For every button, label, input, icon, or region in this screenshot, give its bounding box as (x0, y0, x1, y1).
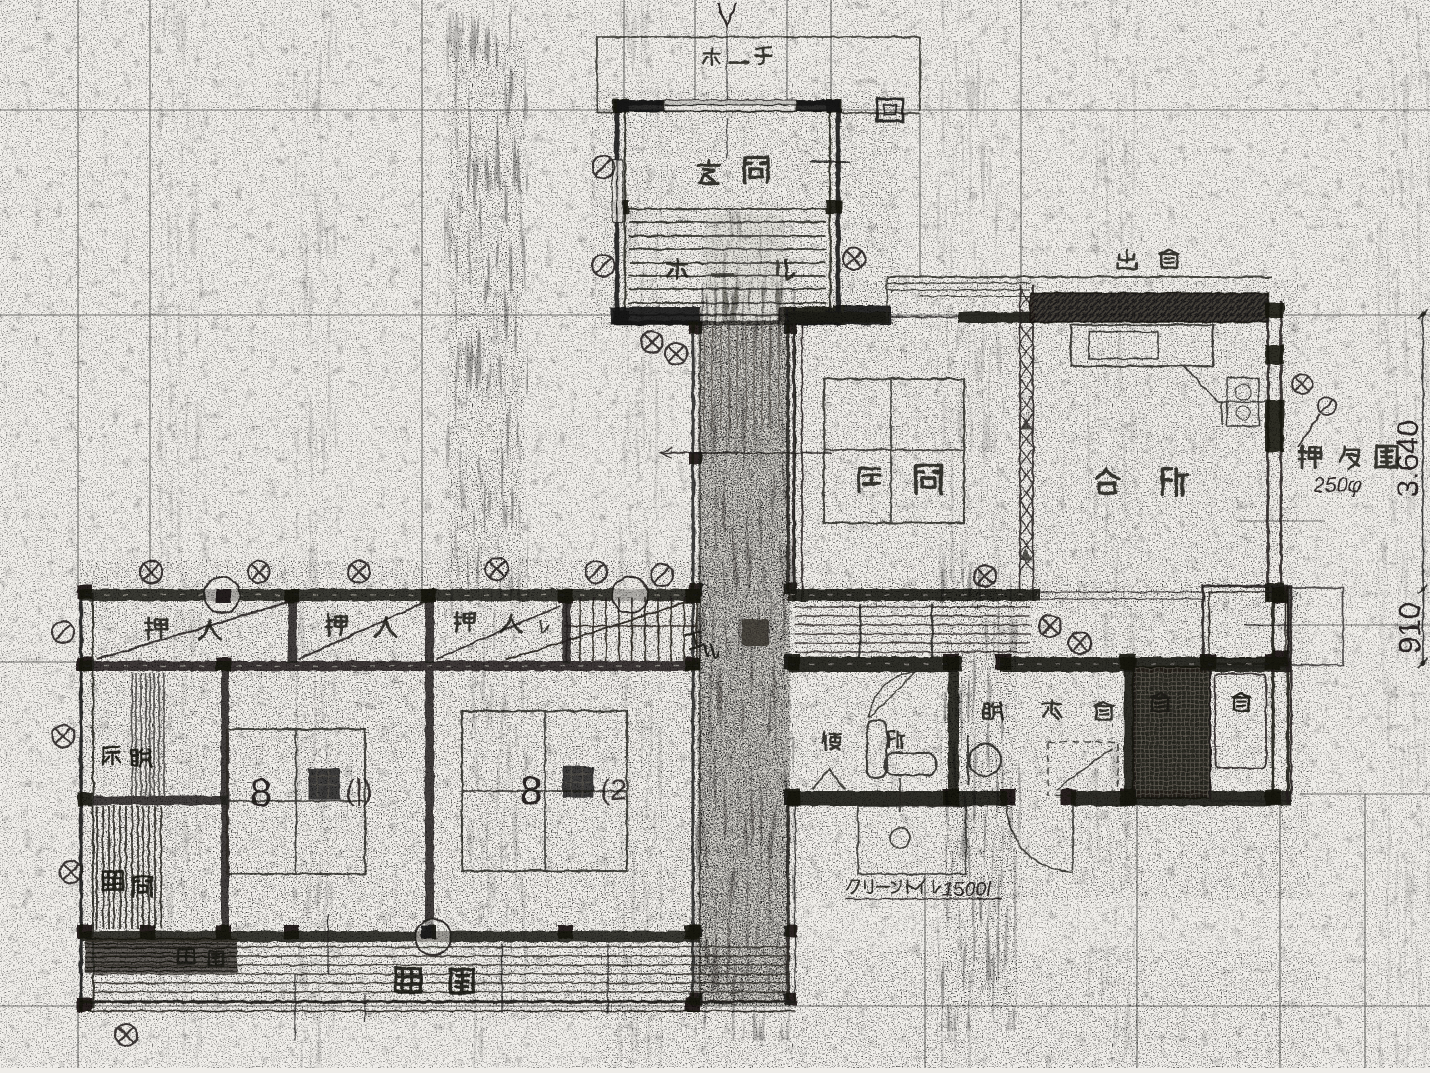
svg-text:250φ: 250φ (1312, 474, 1362, 497)
